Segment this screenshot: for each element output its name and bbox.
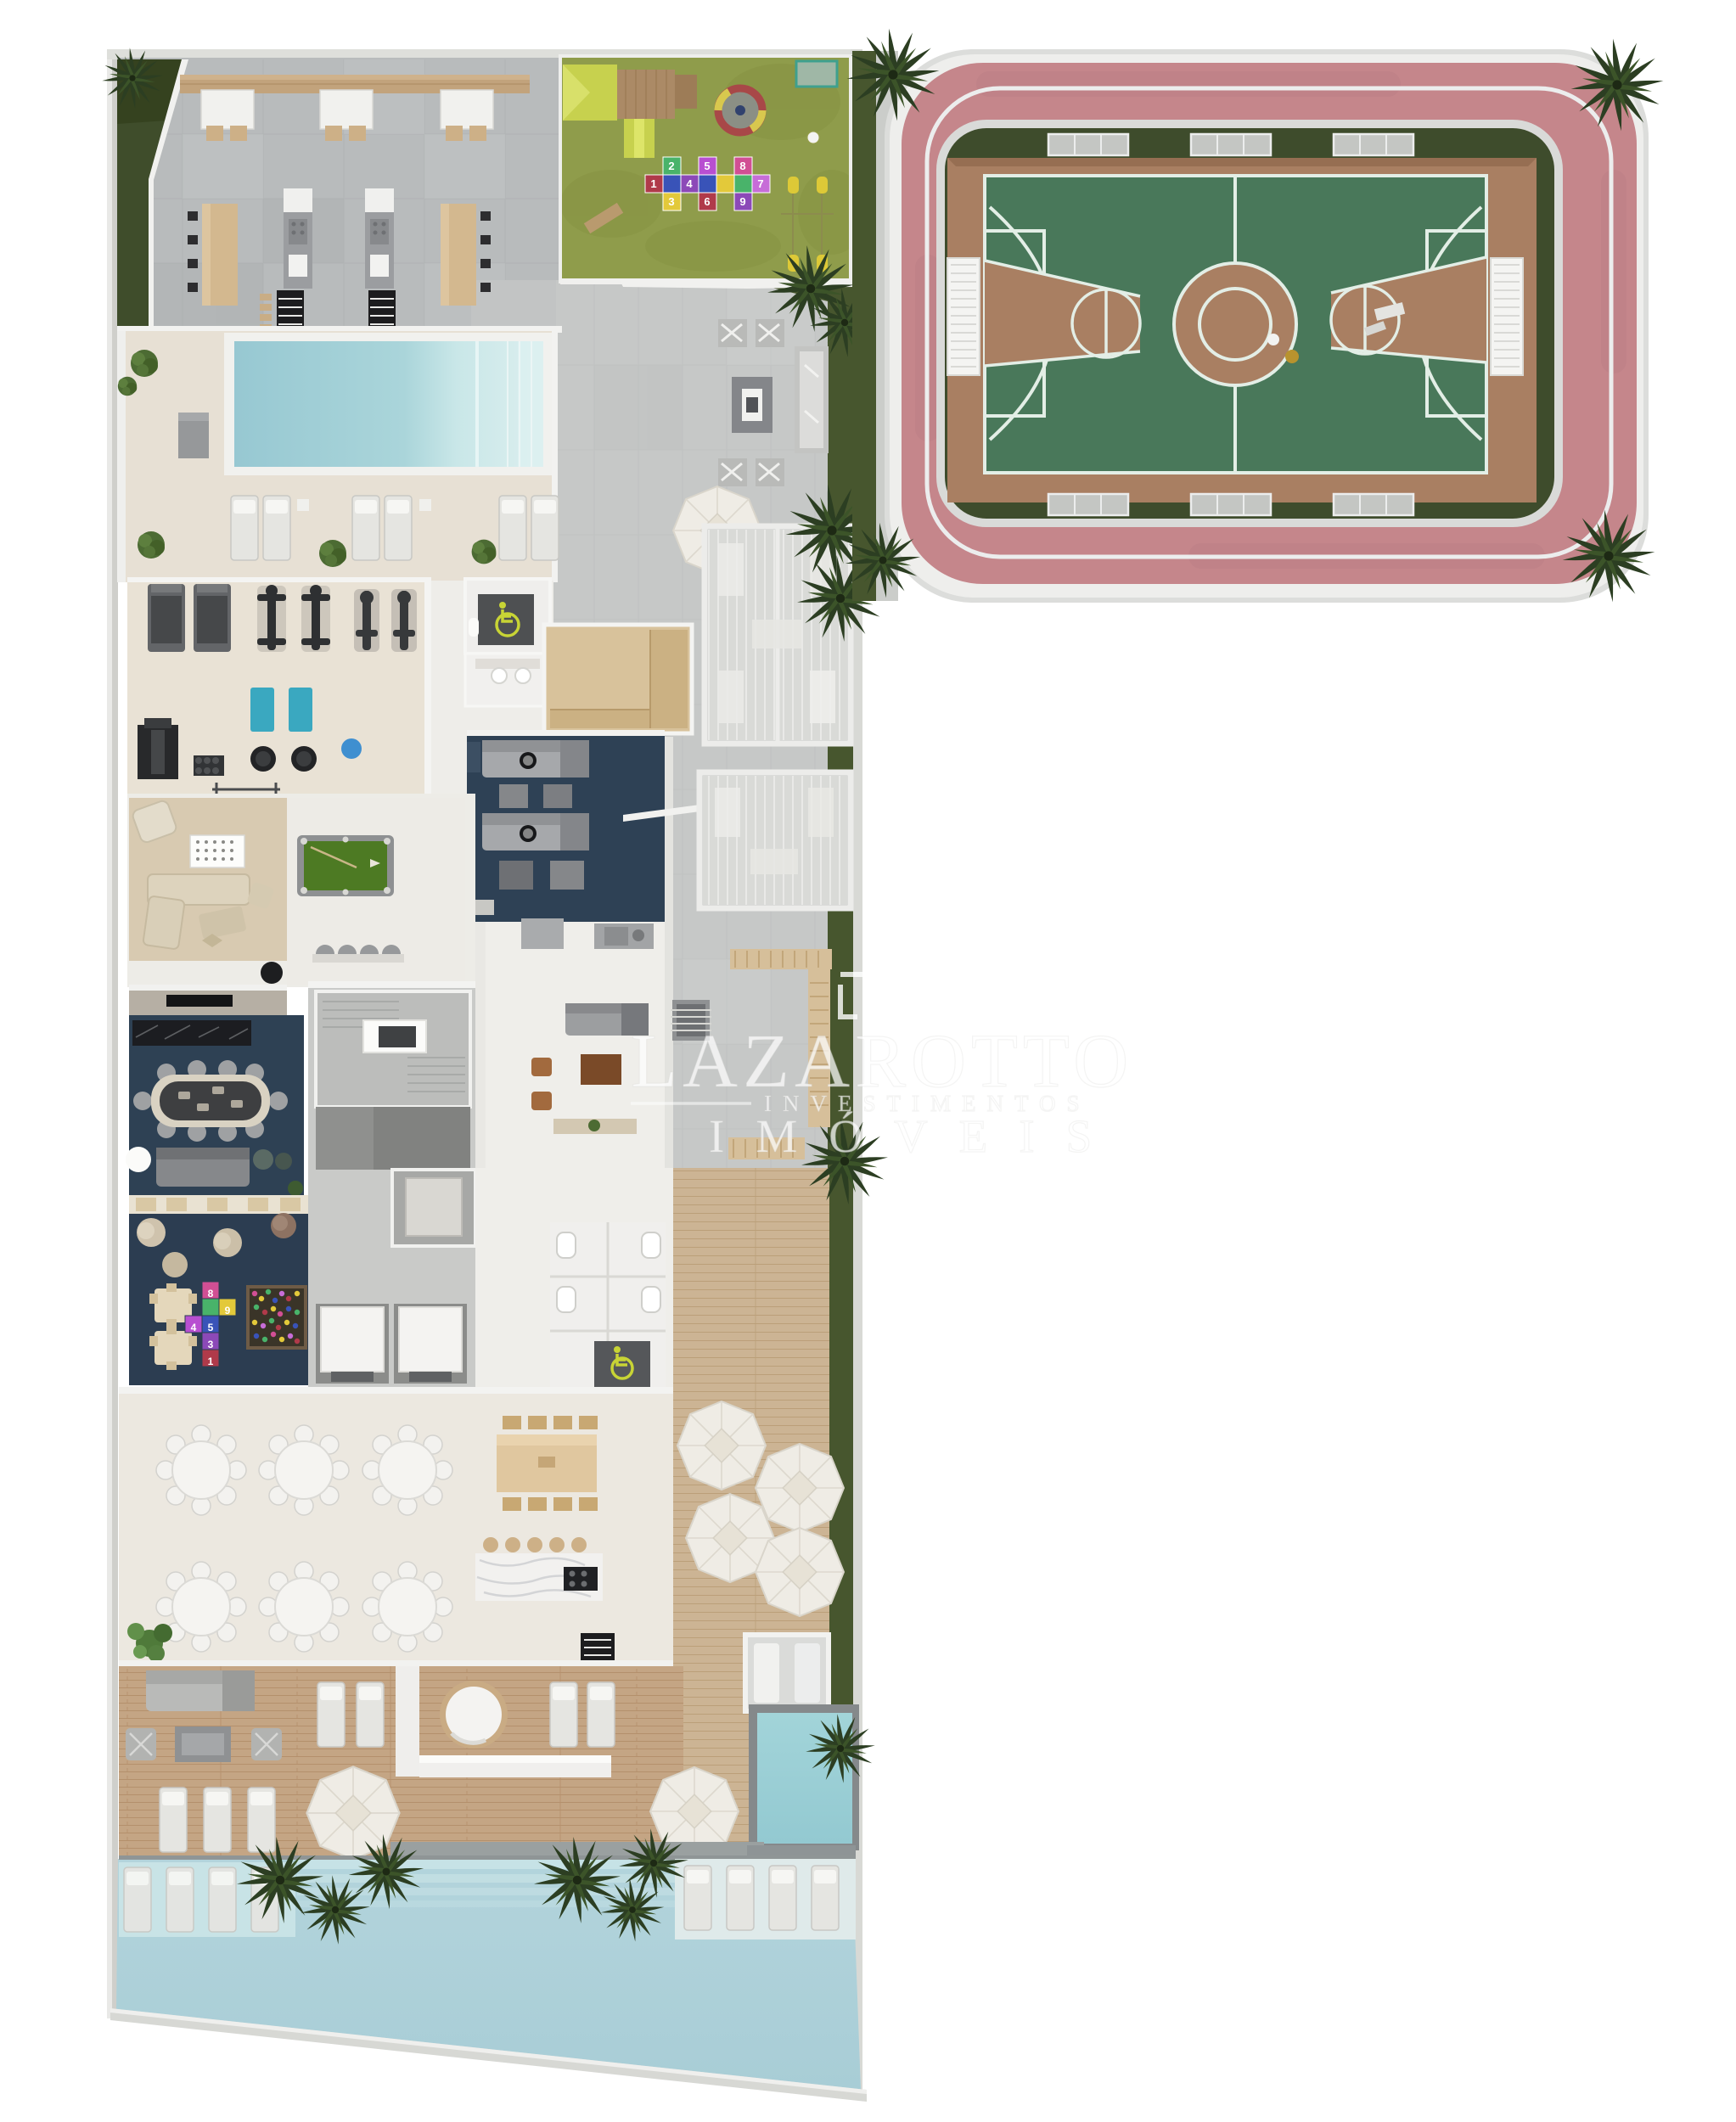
- svg-text:5: 5: [208, 1322, 214, 1333]
- svg-text:7: 7: [757, 177, 763, 190]
- svg-text:9: 9: [739, 195, 745, 208]
- svg-text:4: 4: [686, 177, 693, 190]
- svg-text:8: 8: [208, 1288, 214, 1300]
- svg-text:2: 2: [668, 160, 674, 172]
- svg-text:IMÓVEIS: IMÓVEIS: [709, 1110, 1123, 1162]
- svg-text:1: 1: [650, 177, 656, 190]
- svg-text:8: 8: [739, 160, 745, 172]
- svg-text:6: 6: [704, 195, 710, 208]
- svg-text:4: 4: [191, 1322, 197, 1333]
- svg-text:5: 5: [704, 160, 710, 172]
- svg-text:3: 3: [668, 195, 674, 208]
- svg-text:1: 1: [208, 1356, 214, 1367]
- svg-text:9: 9: [225, 1305, 231, 1316]
- svg-text:3: 3: [208, 1339, 214, 1350]
